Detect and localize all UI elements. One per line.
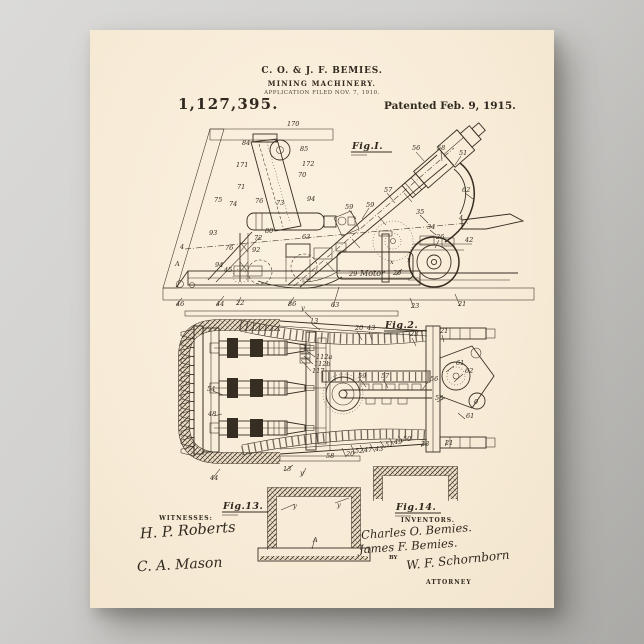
ref-label-43: 43 [374,445,383,453]
fig14-label: Fig.14. [395,502,436,513]
ref-label-170: 170 [287,120,299,128]
ref-label-y: y [300,304,305,312]
ref-label-94: 94 [307,195,315,203]
ref-label-A: A [312,536,318,544]
ref-label-72: 72 [254,234,262,242]
ref-label-117: 117 [312,367,325,375]
ref-label-0: 0 [474,398,478,406]
ref-label-20: 20 [354,324,363,332]
ref-label-86: 86 [288,300,296,308]
ref-label-63: 63 [331,301,339,309]
ref-label-76: 76 [225,244,233,252]
ref-label-58: 58 [437,144,445,152]
ref-label-23: 23 [409,330,418,338]
ref-label-4: 4 [179,243,184,251]
ref-label-21: 21 [457,300,466,308]
ref-label-171: 171 [236,161,248,169]
ref-label-56: 56 [430,375,438,383]
ref-label-47: 47 [363,446,373,454]
attorney-label: ATTORNEY [426,579,472,586]
ref-label-44: 44 [215,300,224,308]
page-background: { "header": { "inventors_line": "C. O. &… [0,0,644,644]
ref-label-61: 61 [456,359,464,367]
ref-label-54: 54 [207,385,215,393]
ref-label-74: 74 [229,200,237,208]
ref-label-43: 43 [366,324,375,332]
ref-label-x: x [390,258,394,266]
ref-label-45: 45 [223,266,232,274]
ref-label-26: 26 [435,233,444,241]
ref-label-73: 73 [276,199,284,207]
ref-label-y: y [292,502,297,510]
ref-label-23: 23 [410,302,419,310]
ref-label-34: 34 [427,223,435,231]
fig1-label: Fig.I. [351,141,383,152]
ref-label-A: A [174,260,180,268]
fig13-label: Fig.13. [222,501,263,512]
ref-label-23: 23 [420,440,429,448]
figure-1-drawing: Fig.I. Motor 170848517270171717673947574… [163,116,534,310]
patent-poster: C. O. & J. F. BEMIES. MINING MACHINERY. … [90,30,554,608]
ref-label-94: 94 [215,261,223,269]
ref-label-20: 20 [392,269,401,277]
ref-label-80: 80 [265,227,273,235]
ref-label-59: 59 [358,372,366,380]
ref-label-51: 51 [385,441,393,449]
ref-label-22: 22 [235,299,244,307]
ref-label-57: 57 [384,186,393,194]
ref-label-61: 61 [466,412,474,420]
ref-label-58: 58 [326,452,334,460]
ref-label-58: 58 [435,394,443,402]
figure-2-drawing: Fig.2. y132043232161625448112a112b117595… [179,304,496,482]
ref-label-52: 52 [355,447,363,455]
figure-13-drawing: Fig.13. yyA [222,488,370,562]
ref-label-20: 20 [345,450,354,458]
ref-label-84: 84 [242,139,250,147]
ref-label-y: y [299,469,304,477]
ref-label-57: 57 [381,372,390,380]
ref-label-21: 21 [444,439,453,447]
ref-label-59: 59 [345,203,353,211]
ref-label-75: 75 [214,196,222,204]
ref-label-x: x [407,256,411,264]
ref-label-y: y [336,501,341,509]
ref-label-29: 29 [348,270,357,278]
motor-label: Motor [359,269,386,278]
ref-label-44: 44 [209,474,218,482]
ref-label-13: 13 [310,317,318,325]
ref-label-59: 59 [366,201,374,209]
ref-label-50: 50 [403,435,411,443]
ref-label-76: 76 [255,197,263,205]
ref-label-35: 35 [416,208,424,216]
ref-label-85: 85 [300,145,308,153]
by-label: BY [389,555,397,561]
ref-label-21: 21 [439,327,448,335]
ref-label-70: 70 [298,171,306,179]
ref-label-71: 71 [237,183,245,191]
ref-label-49: 49 [393,438,402,446]
ref-label-51: 51 [459,149,467,157]
ref-label-56: 56 [412,144,420,152]
ref-label-172: 172 [302,160,314,168]
ref-label-62: 62 [462,186,470,194]
ref-label-46: 46 [175,300,184,308]
ref-label-42: 42 [464,236,473,244]
ref-label-62: 62 [465,367,473,375]
ref-label-92: 92 [252,246,260,254]
ref-label-63: 63 [302,233,310,241]
ref-label-4: 4 [458,214,463,222]
figure-14-drawing: Fig.14. [374,467,458,517]
ref-label-48: 48 [207,410,216,418]
ref-label-13: 13 [283,465,291,473]
ref-label-93: 93 [209,229,217,237]
